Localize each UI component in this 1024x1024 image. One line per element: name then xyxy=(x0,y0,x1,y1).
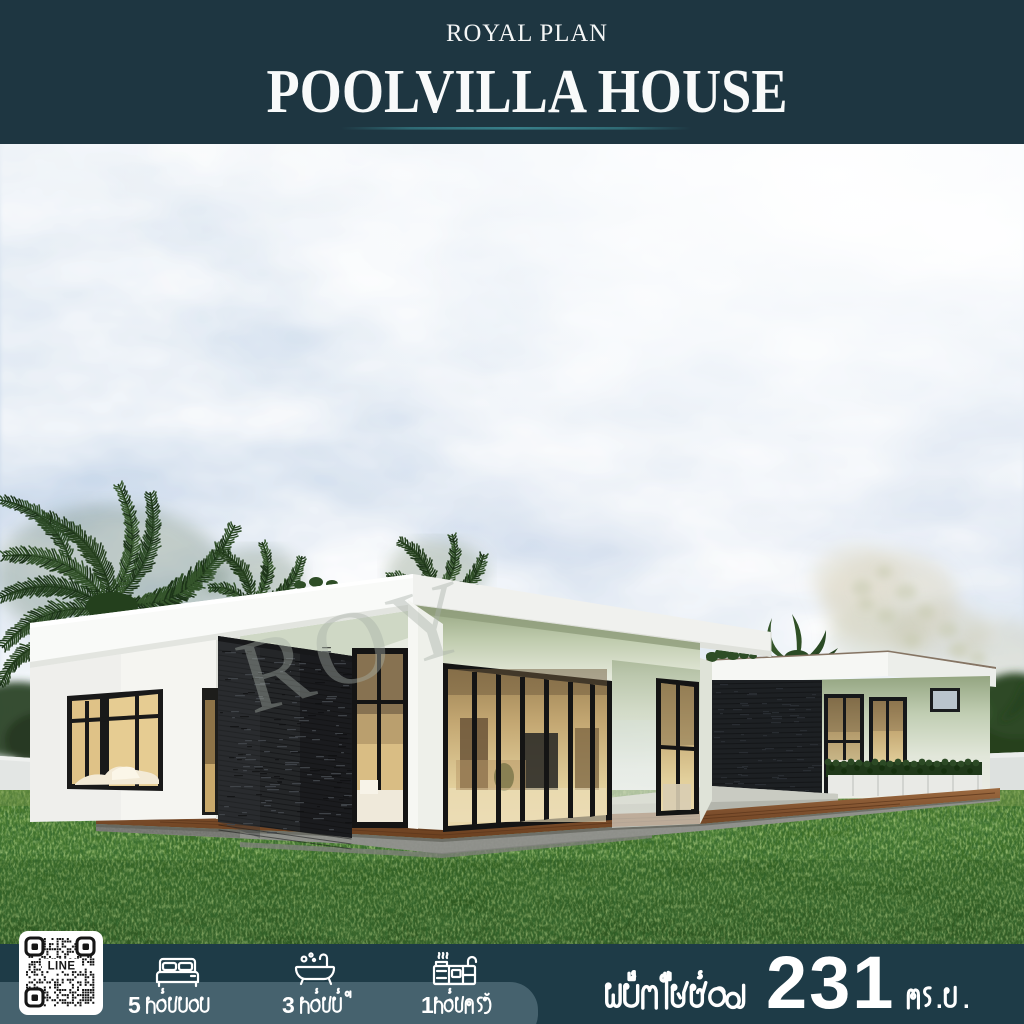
svg-text:231: 231 xyxy=(766,941,895,1024)
svg-text:.: . xyxy=(963,987,970,1014)
svg-text:POOLVILLA HOUSE: POOLVILLA HOUSE xyxy=(267,58,788,126)
svg-text:3: 3 xyxy=(282,992,295,1018)
svg-text:1: 1 xyxy=(421,992,434,1018)
svg-text:.: . xyxy=(936,987,943,1014)
svg-text:5: 5 xyxy=(128,992,141,1018)
svg-text:ROYAL PLAN: ROYAL PLAN xyxy=(446,20,608,47)
svg-text:LINE: LINE xyxy=(48,961,76,973)
